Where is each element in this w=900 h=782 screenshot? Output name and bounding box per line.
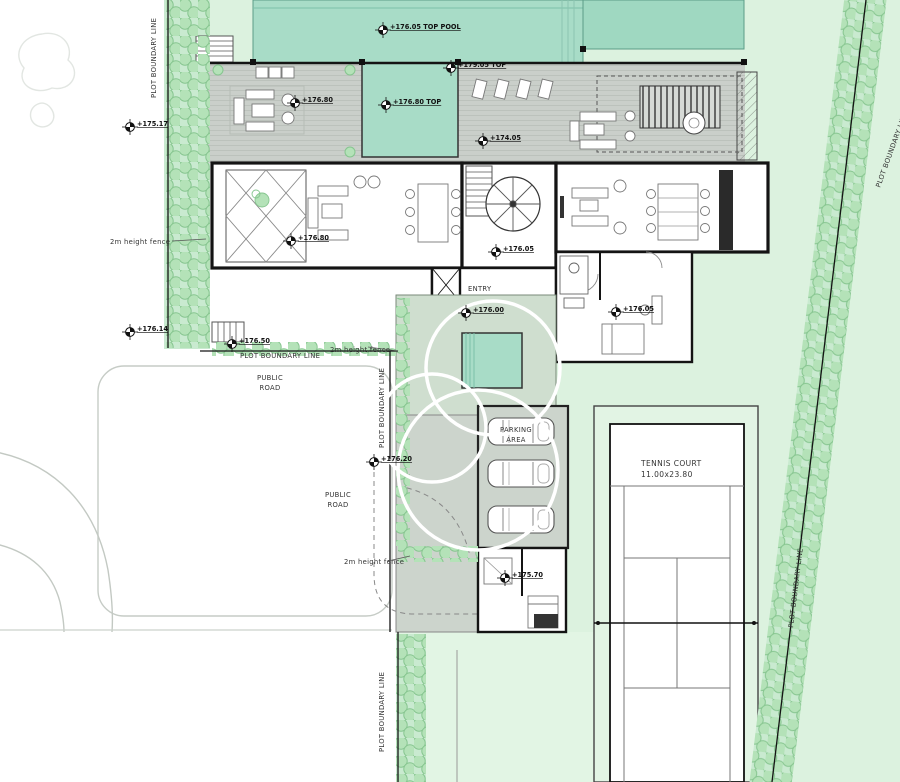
tennis-court-dimensions: 11.00x23.80 xyxy=(641,470,693,479)
svg-text:+175.70: +175.70 xyxy=(512,571,543,579)
plot-boundary-label-bottom: PLOT BOUNDARY LINE xyxy=(378,672,386,752)
plot-boundary-label-mid: PLOT BOUNDARY LINE xyxy=(378,368,386,448)
courtyard-pool xyxy=(462,333,522,388)
svg-text:PARKING: PARKING xyxy=(500,426,532,434)
spiral-staircase xyxy=(486,177,540,231)
public-road-label-1: PUBLIC ROAD xyxy=(257,374,283,392)
entry-label: ENTRY xyxy=(468,285,492,293)
svg-text:+176.05 TOP POOL: +176.05 TOP POOL xyxy=(390,23,462,31)
svg-text:AREA: AREA xyxy=(506,436,526,444)
svg-text:+174.05: +174.05 xyxy=(490,134,521,142)
svg-text:+176.05: +176.05 xyxy=(503,245,534,253)
svg-text:+179.05 TOP: +179.05 TOP xyxy=(458,61,506,69)
svg-text:+176.80: +176.80 xyxy=(298,234,329,242)
tennis-court: TENNIS COURT 11.00x23.80 xyxy=(594,406,758,782)
deck-pool xyxy=(362,63,458,157)
public-road-label-2: PUBLIC ROAD xyxy=(325,491,351,509)
site-plan-drawing: TENNIS COURT 11.00x23.80 +176.05 TOP POO… xyxy=(0,0,900,782)
fence-label-mid: 2m height fence xyxy=(330,346,398,354)
plot-boundary-label-left: PLOT BOUNDARY LINE xyxy=(150,18,158,98)
svg-text:+176.80: +176.80 xyxy=(302,96,333,104)
svg-text:ROAD: ROAD xyxy=(259,384,280,392)
svg-text:PUBLIC: PUBLIC xyxy=(257,374,283,382)
level-marker: +176.14 xyxy=(122,324,168,340)
level-marker: +175.17 xyxy=(122,119,168,135)
site-plan: TENNIS COURT 11.00x23.80 +176.05 TOP POO… xyxy=(0,0,900,782)
car-2 xyxy=(488,460,554,487)
svg-text:2m height fence: 2m height fence xyxy=(110,238,170,246)
car-3 xyxy=(488,506,554,533)
svg-text:+175.17: +175.17 xyxy=(137,120,168,128)
svg-text:+176.05: +176.05 xyxy=(623,305,654,313)
svg-text:+176.14: +176.14 xyxy=(137,325,168,333)
kitchen-counter xyxy=(719,170,733,250)
svg-text:ROAD: ROAD xyxy=(327,501,348,509)
svg-text:2m height fence: 2m height fence xyxy=(330,346,390,354)
bottom-tree-band xyxy=(396,634,426,782)
guest-house xyxy=(478,548,566,632)
plot-boundary-label-top: PLOT BOUNDARY LINE xyxy=(240,352,320,360)
svg-text:+176.80 TOP: +176.80 TOP xyxy=(393,98,441,106)
svg-text:PUBLIC: PUBLIC xyxy=(325,491,351,499)
fence-label-lower: 2m height fence xyxy=(344,556,410,566)
public-road xyxy=(0,366,392,632)
svg-text:+176.00: +176.00 xyxy=(473,306,504,314)
terrain-contours xyxy=(19,33,75,127)
svg-text:+176.50: +176.50 xyxy=(239,337,270,345)
svg-text:+176.20: +176.20 xyxy=(381,455,412,463)
tennis-court-label: TENNIS COURT xyxy=(640,459,702,468)
pergola xyxy=(640,86,720,134)
left-tree-band xyxy=(166,0,210,348)
